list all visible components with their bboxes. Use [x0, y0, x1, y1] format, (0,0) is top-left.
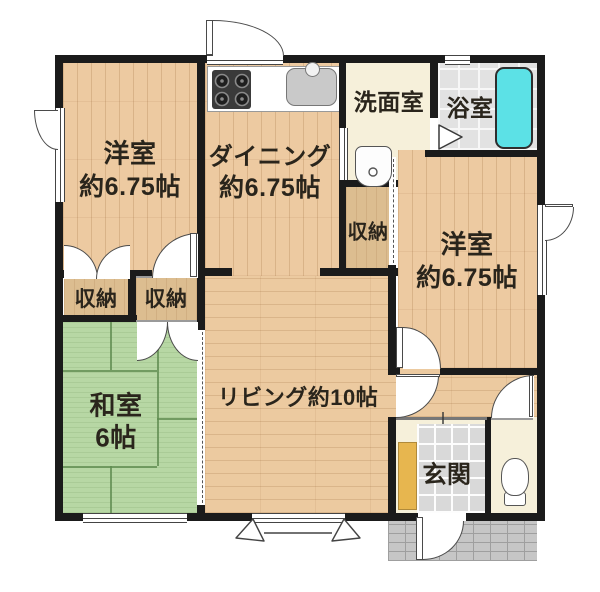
window	[445, 55, 470, 65]
room-label-bedroom-right-size: 約6.75帖	[416, 258, 518, 294]
back-door-swing	[213, 20, 284, 56]
entrance-step-line	[396, 417, 487, 420]
tatami-line	[110, 322, 112, 370]
wall	[440, 368, 545, 375]
wall	[388, 265, 396, 375]
room-label-dining-name: ダイニング	[209, 137, 332, 172]
washbasin-icon	[355, 146, 392, 187]
wall	[388, 417, 396, 513]
wall	[430, 55, 438, 118]
tatami-line	[63, 370, 157, 372]
bathroom-door-opening	[430, 118, 438, 150]
casement-window-leaf	[545, 204, 573, 207]
room-label-bedroom-right-name: 洋室	[440, 225, 493, 262]
front-door-opening	[418, 513, 466, 521]
wall	[197, 322, 205, 330]
hallway-door-leaf	[396, 374, 440, 377]
wall	[197, 505, 205, 513]
wall	[197, 63, 205, 268]
wall	[339, 55, 346, 128]
room-label-bedroom-top-left-size: 約6.75帖	[79, 167, 181, 203]
wall	[485, 417, 491, 513]
casement-window-swing	[34, 110, 58, 150]
wall	[345, 513, 418, 521]
wall	[55, 315, 137, 322]
wall	[283, 55, 445, 63]
room-label-washroom: 洗面室	[354, 83, 425, 117]
window	[83, 513, 187, 523]
gas-stove-icon	[212, 70, 251, 109]
room-label-living: リビング約10帖	[218, 380, 378, 412]
toilet-door-leaf	[529, 375, 533, 417]
washroom-sliding-door	[339, 128, 348, 180]
wall	[187, 513, 252, 521]
back-door-leaf	[206, 20, 213, 55]
window	[252, 513, 345, 523]
floor-plan: 洋室 約6.75帖 ダイニング 約6.75帖 洗面室 浴室 収納 洋室 約6.7…	[0, 0, 600, 592]
closet-left-b-label: 収納	[145, 283, 188, 313]
wall	[537, 295, 545, 521]
wall	[537, 55, 545, 205]
wall	[470, 55, 545, 63]
room-label-entrance: 玄関	[423, 455, 472, 490]
closet-mid-label: 収納	[348, 216, 389, 245]
bedroom-right-door-leaf	[396, 327, 403, 368]
shoe-cabinet	[398, 442, 417, 510]
wall	[55, 55, 207, 63]
faucet-icon	[305, 62, 320, 77]
toilet-icon	[501, 458, 529, 496]
closet-b-door-leaf	[190, 233, 197, 277]
wall	[466, 513, 545, 521]
wall	[320, 268, 398, 276]
toilet-opening-line	[491, 418, 533, 420]
bathtub-icon	[495, 67, 533, 149]
back-door-opening	[207, 55, 283, 65]
wall	[128, 278, 136, 315]
wall	[197, 268, 232, 276]
wall	[425, 150, 545, 157]
room-label-japanese-size: 6帖	[95, 418, 136, 455]
closet-left-a-label: 収納	[75, 283, 118, 313]
room-label-bedroom-top-left-name: 洋室	[103, 134, 156, 171]
tatami-line	[157, 418, 197, 420]
wall	[55, 55, 63, 108]
tatami-line	[110, 466, 112, 513]
wall	[55, 202, 63, 521]
front-door-leaf	[416, 517, 423, 560]
room-label-dining-size: 約6.75帖	[219, 168, 321, 204]
room-label-bathroom: 浴室	[447, 89, 494, 123]
wall	[339, 180, 346, 276]
casement-window-swing	[545, 207, 574, 241]
japanese-room-sliding-door	[198, 330, 205, 505]
wall	[197, 276, 205, 322]
